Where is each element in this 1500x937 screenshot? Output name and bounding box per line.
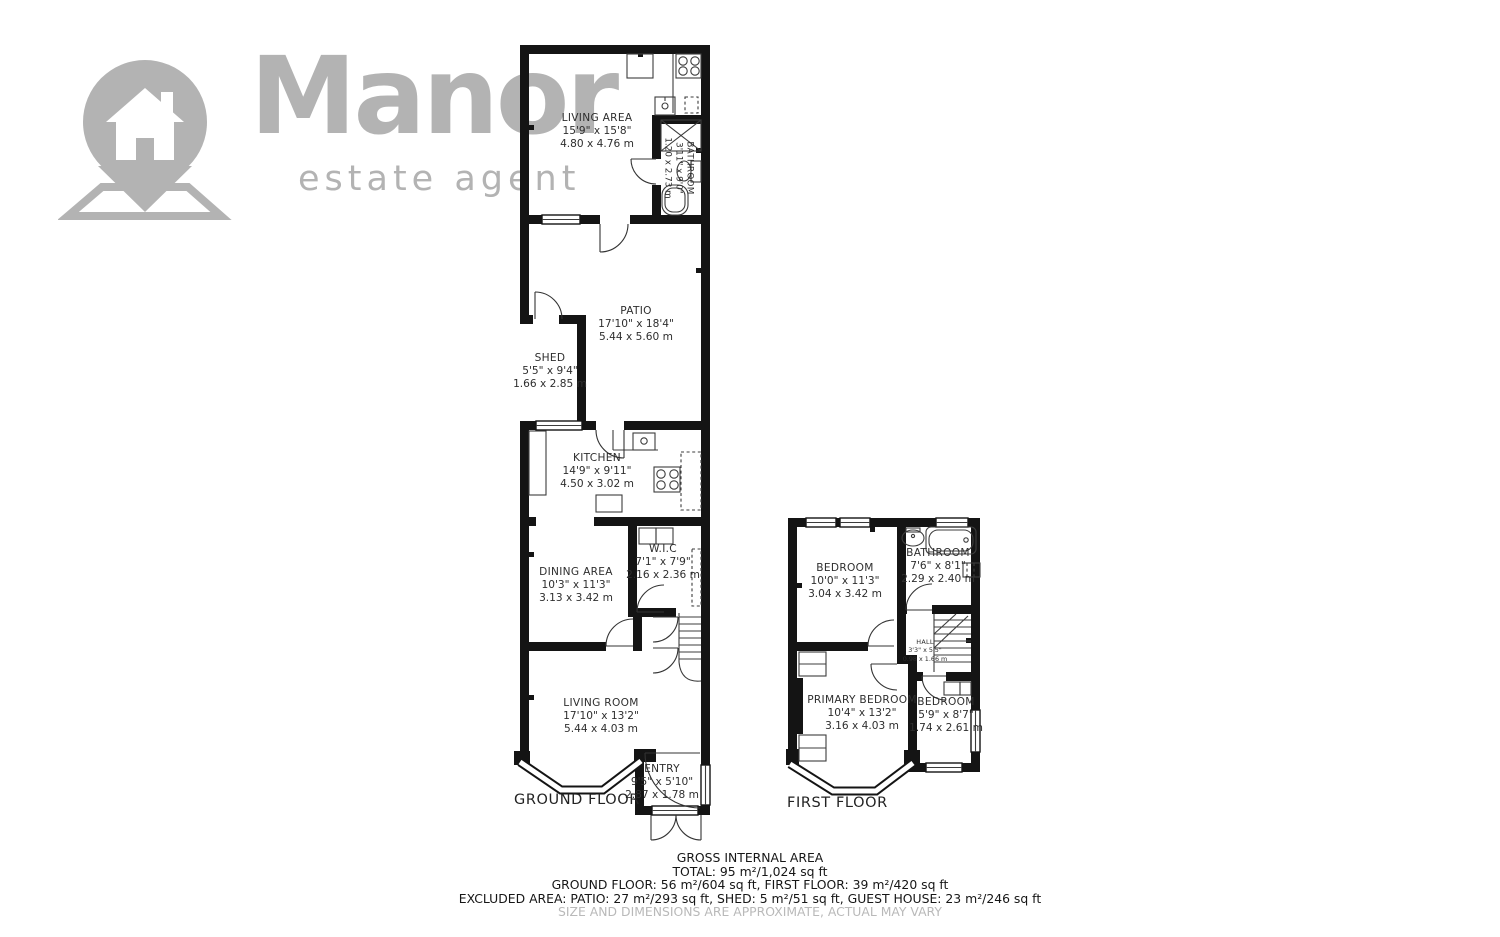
room-label-patio: PATIO 17'10" x 18'4" 5.44 x 5.60 m — [598, 305, 674, 344]
room-dims-imperial: 3'3" x 5'5" — [903, 646, 948, 654]
door-arc — [868, 620, 894, 646]
room-dims-metric: 5.44 x 5.60 m — [598, 331, 674, 344]
room-dims-imperial: 10'3" x 11'3" — [539, 579, 613, 592]
door-arc — [651, 815, 676, 840]
room-dims-imperial: 17'10" x 13'2" — [563, 710, 639, 723]
floorplan-page: Manor estate agent — [0, 0, 1500, 937]
room-dims-metric: 1.20 x 2.73 m — [662, 137, 673, 198]
room-dims-imperial: 17'10" x 18'4" — [598, 318, 674, 331]
summary-floors: GROUND FLOOR: 56 m²/604 sq ft, FIRST FLO… — [0, 878, 1500, 892]
room-label-small-bedroom: BEDROOM 5'9" x 8'7" 1.74 x 2.61 m — [909, 696, 983, 735]
room-dims-metric: 1.66 x 2.85 m — [513, 378, 587, 391]
first-floor-label: FIRST FLOOR — [787, 795, 888, 811]
room-dims-metric: 4.80 x 4.76 m — [560, 138, 634, 151]
room-dims-imperial: 5'5" x 9'4" — [513, 365, 587, 378]
door-arc — [637, 585, 664, 612]
stairs — [679, 613, 701, 681]
room-dims-metric: 0.98 x 1.66 m — [903, 655, 948, 663]
bay-window — [790, 763, 913, 791]
room-label-hall: HALL 3'3" x 5'5" 0.98 x 1.66 m — [903, 638, 948, 663]
door-arc — [631, 159, 656, 184]
door-arc — [600, 224, 628, 252]
room-dims-imperial: 7'6" x 8'1" — [901, 560, 975, 573]
room-dims-metric: 3.04 x 3.42 m — [808, 588, 882, 601]
room-label-bathroom: BATHROOM 7'6" x 8'1" 2.29 x 2.40 m — [901, 547, 975, 586]
room-dims-imperial: 3'11" x 9'0" — [673, 137, 684, 198]
room-label-kitchen: KITCHEN 14'9" x 9'11" 4.50 x 3.02 m — [560, 452, 634, 491]
room-dims-imperial: 10'4" x 13'2" — [807, 707, 917, 720]
room-dims-imperial: 15'9" x 15'8" — [560, 125, 634, 138]
room-name: BATHROOM — [901, 547, 975, 560]
room-name: BATHROOM — [683, 137, 694, 198]
room-dims-imperial: 14'9" x 9'11" — [560, 465, 634, 478]
room-name: PRIMARY BEDROOM — [807, 694, 917, 707]
room-dims-metric: 3.16 x 4.03 m — [807, 720, 917, 733]
door-arc — [653, 648, 678, 673]
room-name: LIVING ROOM — [563, 697, 639, 710]
door-arc — [653, 617, 678, 642]
summary-total: TOTAL: 95 m²/1,024 sq ft — [0, 865, 1500, 879]
summary-disclaimer: SIZE AND DIMENSIONS ARE APPROXIMATE, ACT… — [0, 905, 1500, 919]
room-label-living-room: LIVING ROOM 17'10" x 13'2" 5.44 x 4.03 m — [563, 697, 639, 736]
ground-floor-label: GROUND FLOOR — [514, 792, 640, 808]
area-summary: GROSS INTERNAL AREA TOTAL: 95 m²/1,024 s… — [0, 851, 1500, 919]
room-name: BEDROOM — [909, 696, 983, 709]
room-dims-metric: 1.74 x 2.61 m — [909, 722, 983, 735]
room-name: ENTRY — [625, 763, 699, 776]
door-arc — [535, 292, 562, 319]
room-name: HALL — [903, 638, 948, 646]
sink-icon — [633, 433, 655, 450]
room-dims-metric: 2.16 x 2.36 m — [626, 569, 700, 582]
bay-window — [520, 761, 641, 790]
door-arc — [606, 619, 633, 646]
kitchenette — [627, 54, 701, 115]
room-name: W.I.C — [626, 543, 700, 556]
room-label-wic: W.I.C 7'1" x 7'9" 2.16 x 2.36 m — [626, 543, 700, 582]
room-name: KITCHEN — [560, 452, 634, 465]
room-dims-metric: 3.13 x 3.42 m — [539, 592, 613, 605]
sink-icon — [655, 97, 675, 115]
room-dims-imperial: 5'9" x 8'7" — [909, 709, 983, 722]
room-name: LIVING AREA — [560, 112, 634, 125]
door-arc — [676, 815, 701, 840]
room-name: PATIO — [598, 305, 674, 318]
room-dims-imperial: 10'0" x 11'3" — [808, 575, 882, 588]
room-label-dining-area: DINING AREA 10'3" x 11'3" 3.13 x 3.42 m — [539, 566, 613, 605]
summary-title: GROSS INTERNAL AREA — [0, 851, 1500, 865]
room-dims-metric: 5.44 x 4.03 m — [563, 723, 639, 736]
room-dims-imperial: 7'1" x 7'9" — [626, 556, 700, 569]
room-dims-metric: 4.50 x 3.02 m — [560, 478, 634, 491]
room-label-primary-bedroom: PRIMARY BEDROOM 10'4" x 13'2" 3.16 x 4.0… — [807, 694, 917, 733]
summary-excluded: EXCLUDED AREA: PATIO: 27 m²/293 sq ft, S… — [0, 892, 1500, 906]
room-label-shed: SHED 5'5" x 9'4" 1.66 x 2.85 m — [513, 352, 587, 391]
room-label-bedroom: BEDROOM 10'0" x 11'3" 3.04 x 3.42 m — [808, 562, 882, 601]
door-arc — [871, 664, 897, 690]
room-dims-imperial: 9'5" x 5'10" — [625, 776, 699, 789]
room-name: BEDROOM — [808, 562, 882, 575]
room-label-guest-bathroom: BATHROOM 3'11" x 9'0" 1.20 x 2.73 m — [662, 137, 695, 198]
door-arc — [906, 584, 932, 610]
room-name: DINING AREA — [539, 566, 613, 579]
stove-icon — [654, 467, 680, 492]
room-dims-metric: 2.29 x 2.40 m — [901, 573, 975, 586]
floorplan-canvas — [0, 0, 1500, 937]
doors — [535, 159, 701, 840]
room-label-living-area: LIVING AREA 15'9" x 15'8" 4.80 x 4.76 m — [560, 112, 634, 151]
room-name: SHED — [513, 352, 587, 365]
stove-icon — [676, 54, 701, 78]
